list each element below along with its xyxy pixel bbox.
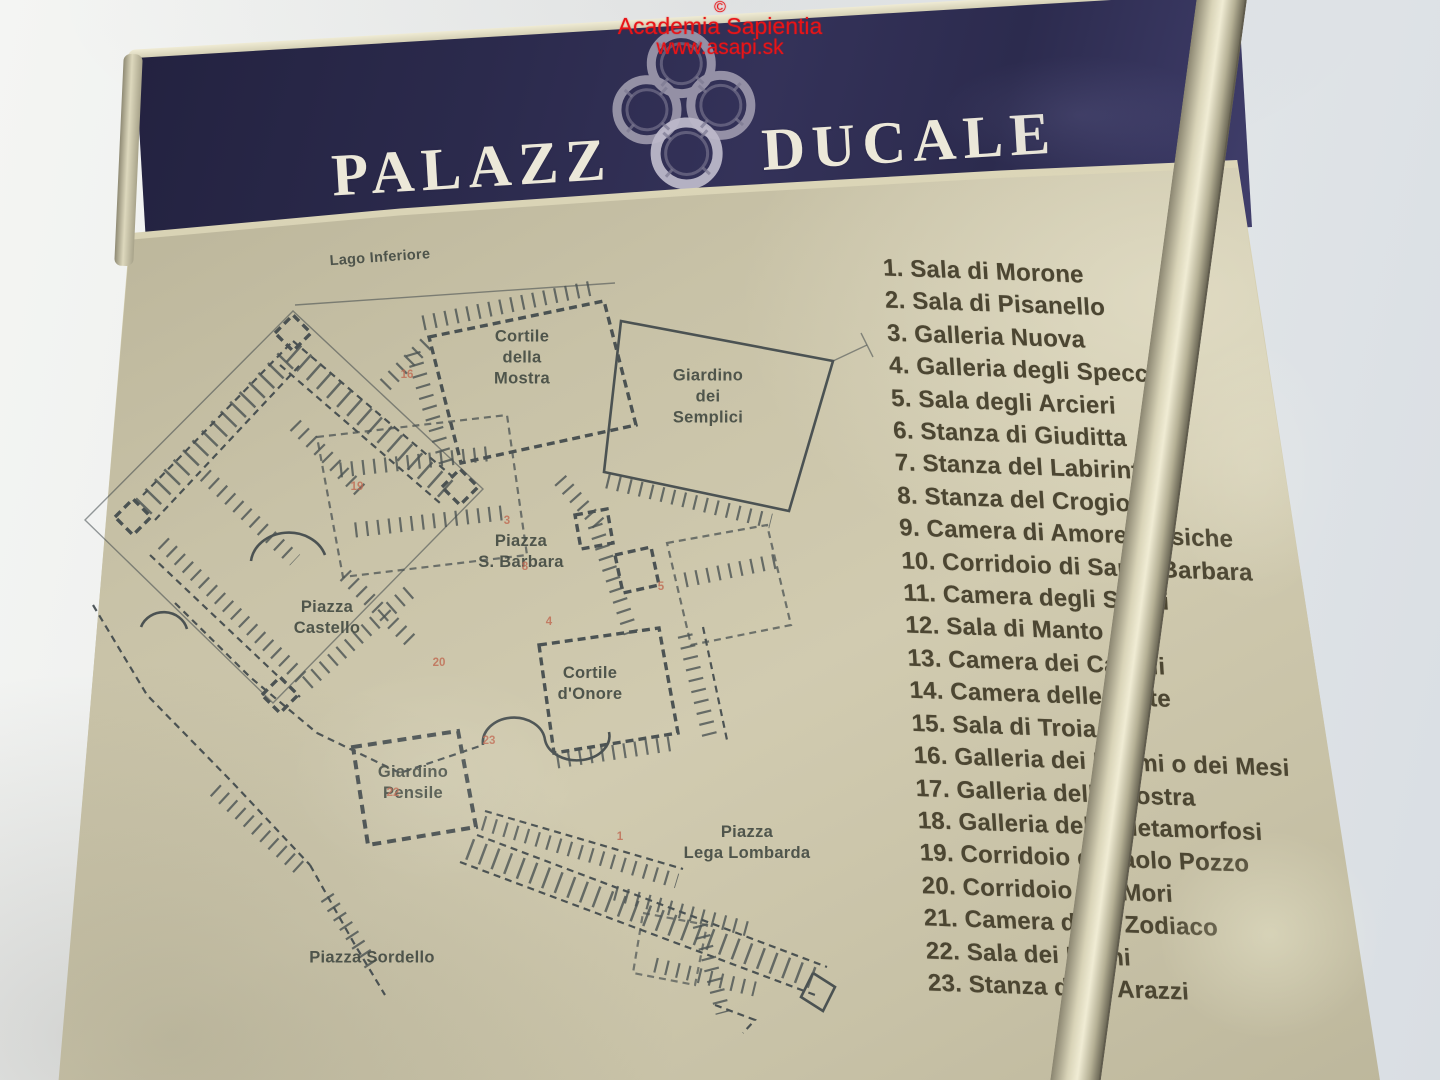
watermark: © Academia Sapientia www.asapi.sk [555,0,885,58]
map-label-piazza-castello: Piazza Castello [294,597,361,639]
room-number: 4 [546,616,552,628]
map-label-cortile-mostra: Cortile della Mostra [494,326,550,389]
map-label-giardino-semplici: Giardino dei Semplici [673,365,743,428]
room-number: 5 [658,581,664,593]
map-label-piazza-sordello: Piazza Sordello [309,947,435,968]
watermark-org: Academia Sapientia [555,15,885,37]
room-number: 3 [504,515,510,527]
gonzaga-rings-logo [613,169,763,179]
room-number: 19 [351,481,364,493]
floor-plan: Lago Inferiore Cortile della Mostra Giar… [55,225,885,1035]
watermark-url: www.asapi.sk [555,37,885,58]
room-number: 8 [522,561,528,573]
room-number: 23 [483,735,496,747]
map-label-piazza-lega-lombarda: Piazza Lega Lombarda [684,822,811,864]
map-label-cortile-onore: Cortile d'Onore [558,663,623,705]
floor-plan-drawing [55,225,885,1035]
room-number: 1 [617,831,623,843]
sign-photo: PALAZZ [0,0,1440,1080]
room-number: 20 [433,657,446,669]
room-number: 16 [401,369,414,381]
room-number: 22 [387,787,400,799]
